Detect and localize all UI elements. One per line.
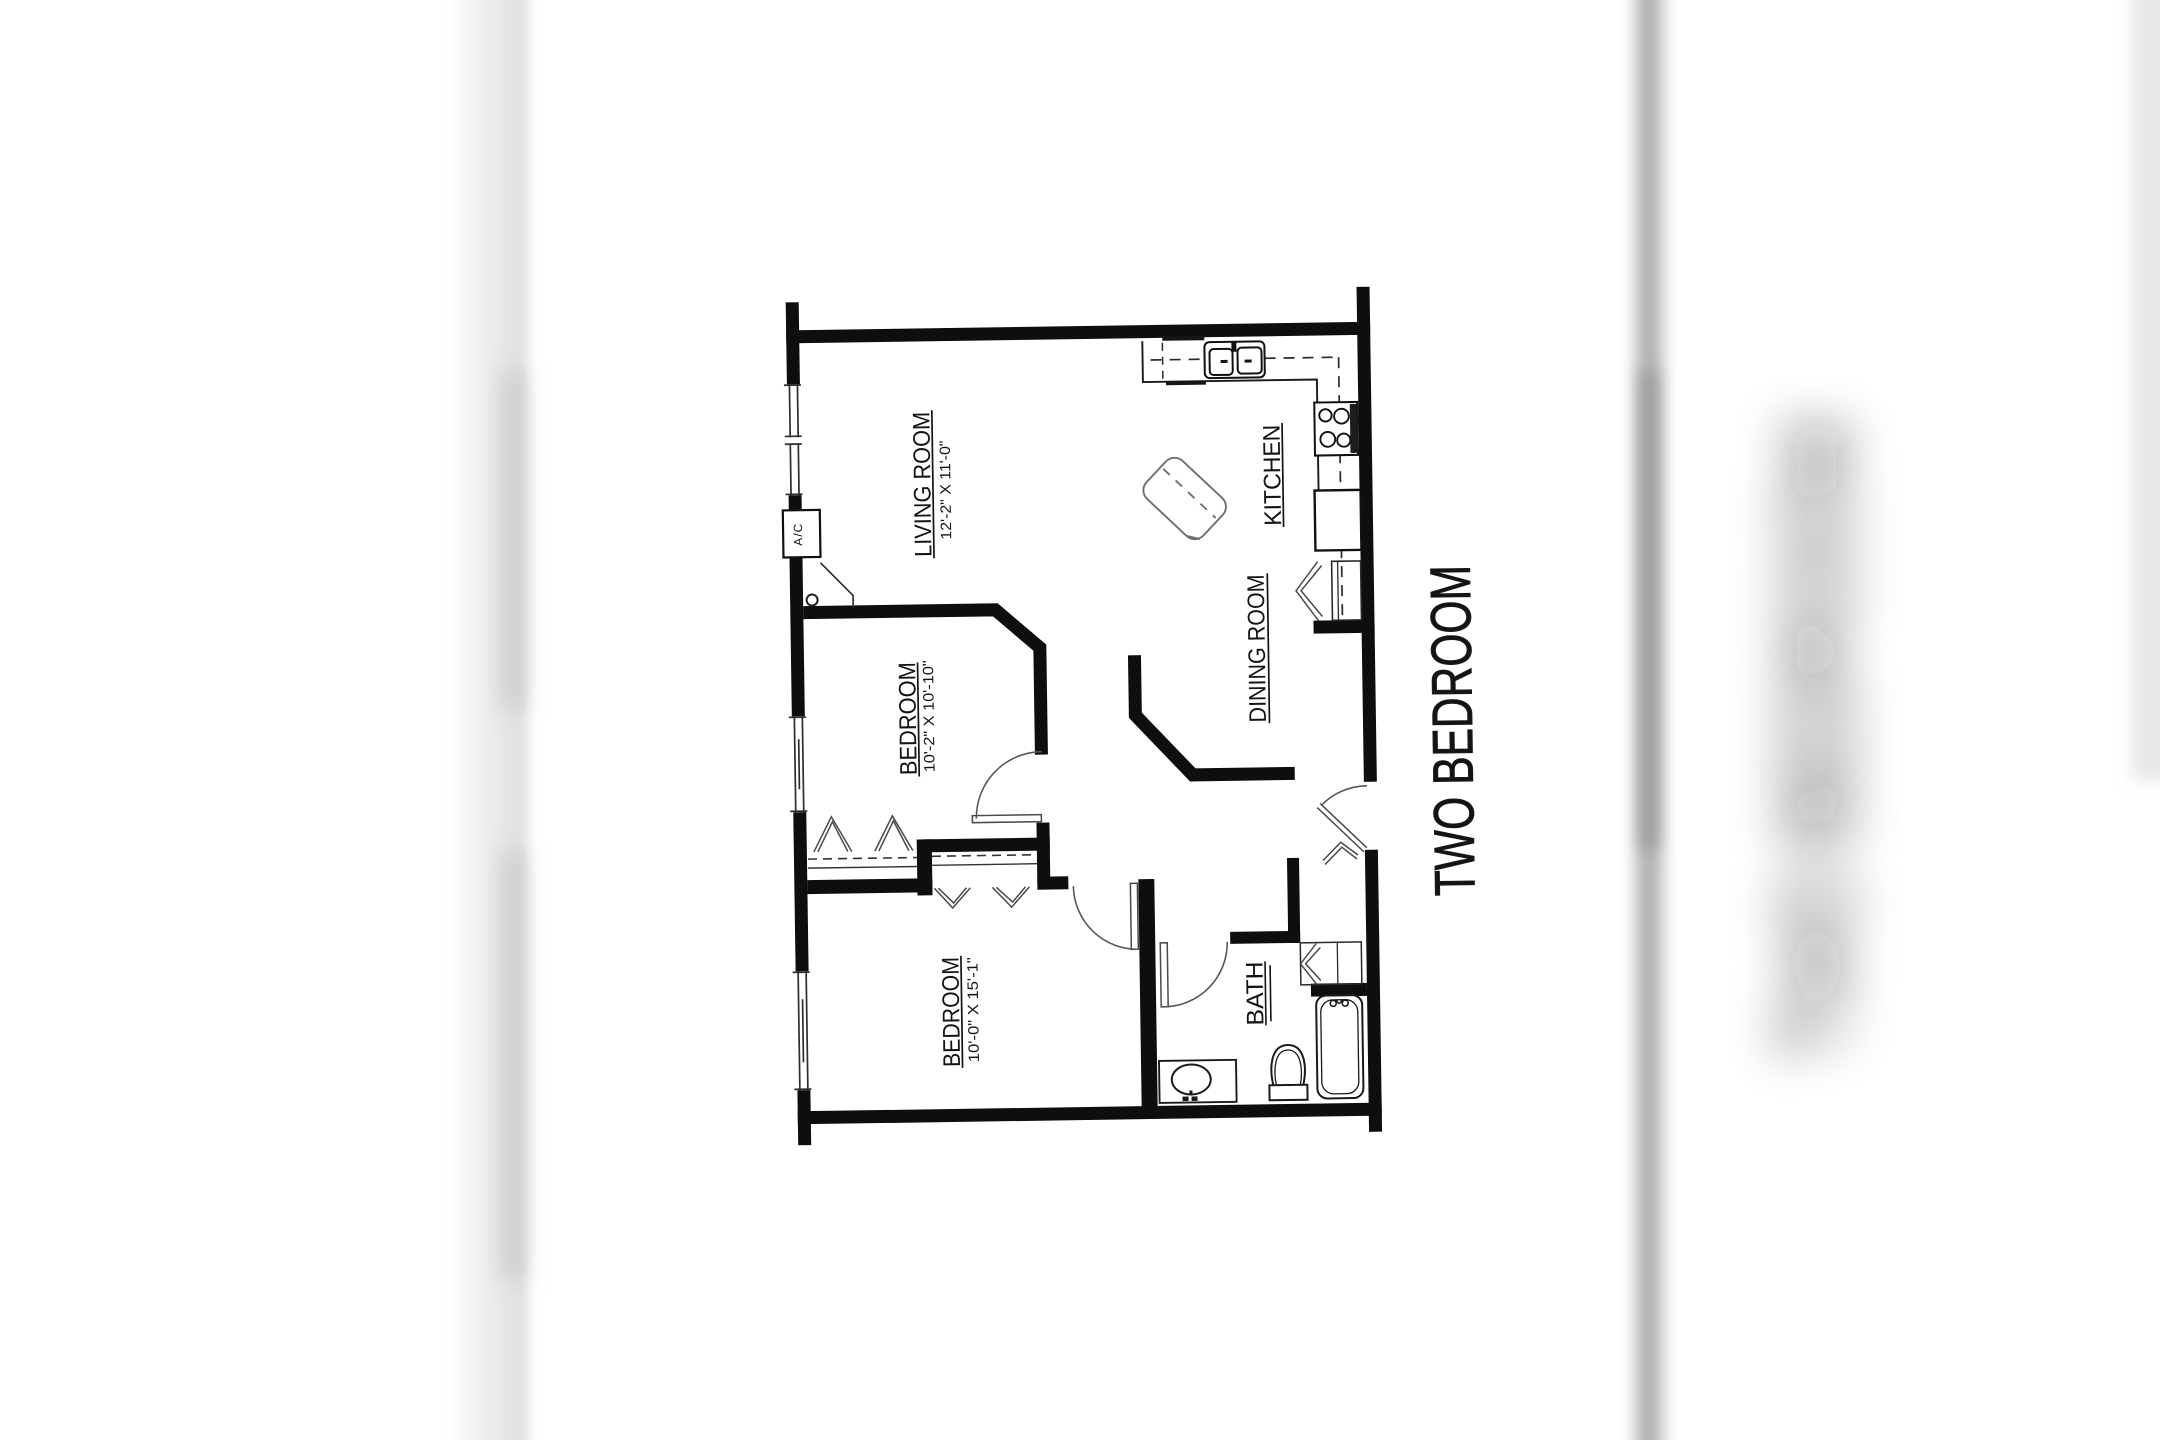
svg-text:TWO BEDROOM: TWO BEDROOM bbox=[1759, 420, 1875, 1060]
svg-text:12'-2" X 11'-0": 12'-2" X 11'-0" bbox=[937, 440, 955, 539]
svg-text:10'-2" X 10'-10": 10'-2" X 10'-10" bbox=[920, 660, 939, 772]
svg-text:A/C: A/C bbox=[791, 523, 805, 546]
svg-text:10'-0" X 15'-1": 10'-0" X 15'-1" bbox=[964, 957, 983, 1062]
svg-text:TWO BEDROOM: TWO BEDROOM bbox=[1419, 565, 1488, 897]
